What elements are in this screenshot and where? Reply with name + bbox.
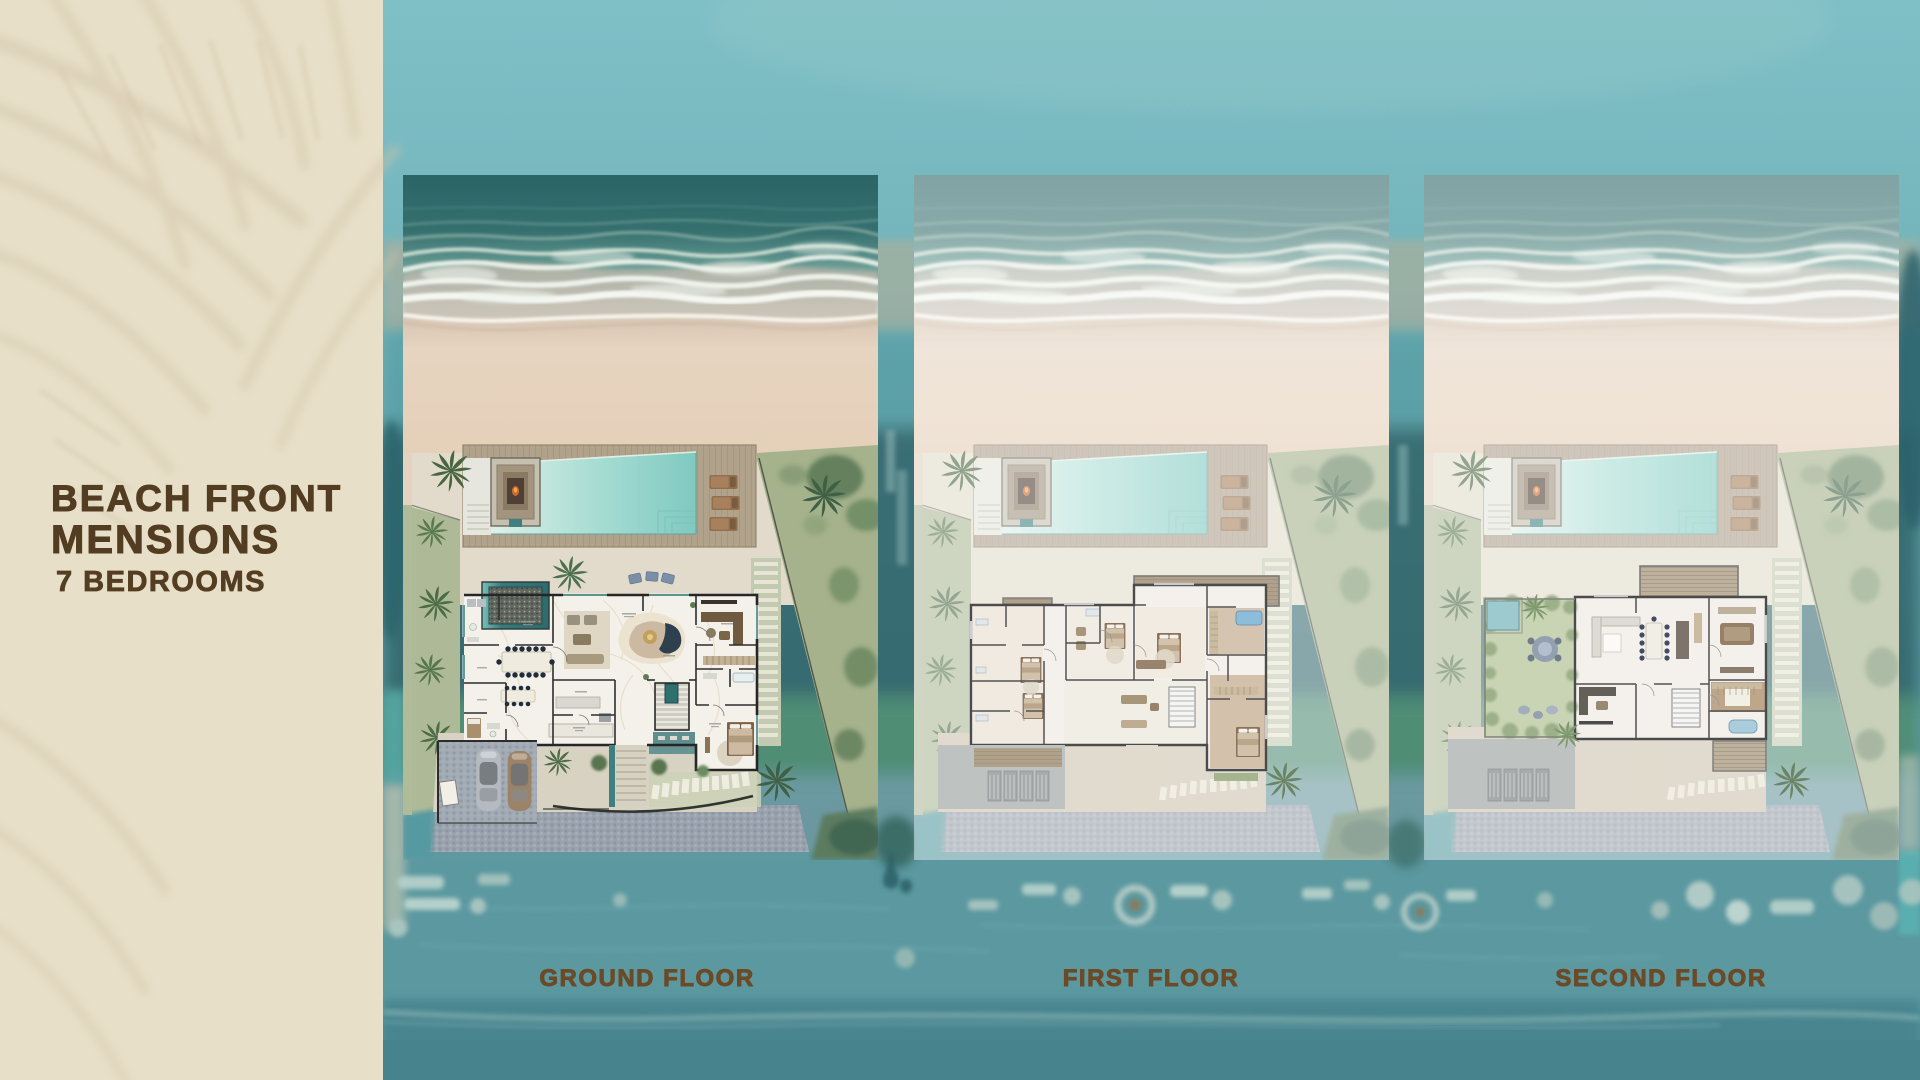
svg-text:GROUND FLOOR: GROUND FLOOR: [539, 965, 754, 992]
svg-text:FIRST FLOOR: FIRST FLOOR: [1063, 965, 1239, 992]
svg-text:SECOND FLOOR: SECOND FLOOR: [1555, 965, 1766, 992]
svg-text:7 BEDROOMS: 7 BEDROOMS: [56, 566, 266, 598]
svg-text:BEACH FRONT: BEACH FRONT: [51, 478, 342, 519]
svg-text:MENSIONS: MENSIONS: [51, 518, 280, 562]
